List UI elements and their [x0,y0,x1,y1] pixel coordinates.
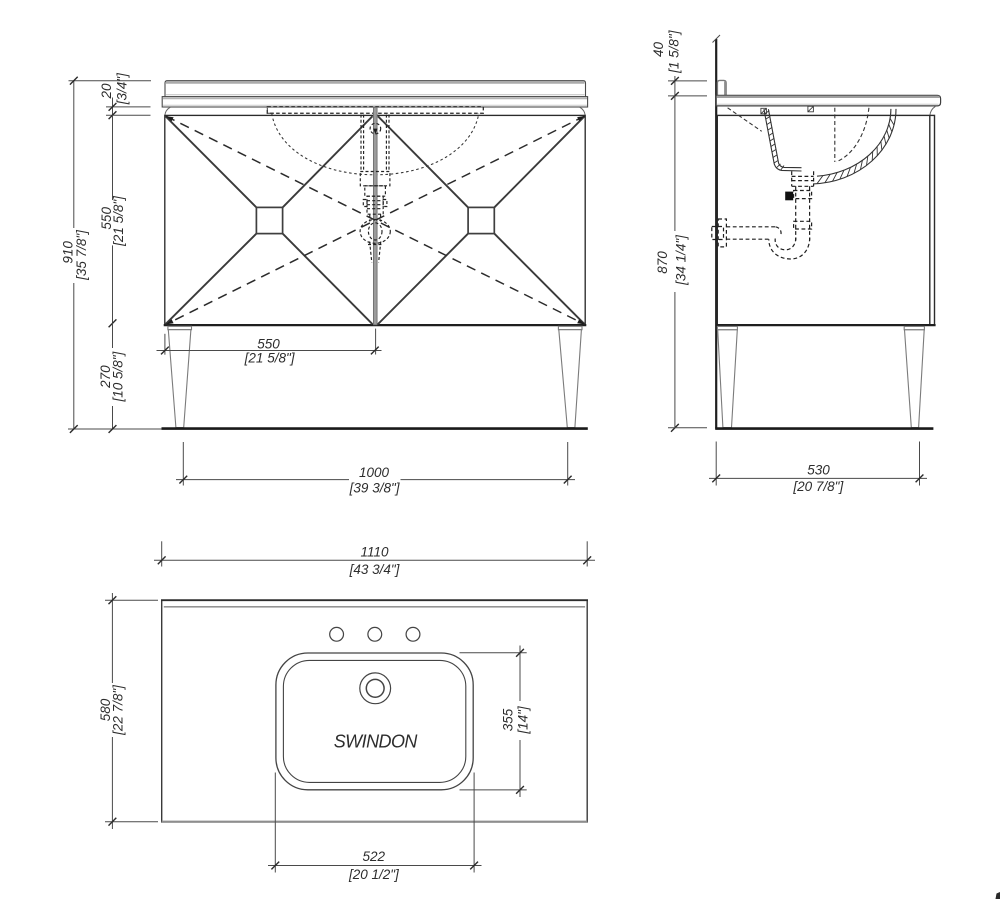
svg-text:[14"]: [14"] [515,705,530,735]
svg-text:[1 5/8"]: [1 5/8"] [666,29,681,74]
svg-text:[21 5/8"]: [21 5/8"] [244,350,296,365]
svg-text:[34 1/4"]: [34 1/4"] [674,234,689,286]
svg-text:550: 550 [257,336,280,351]
svg-text:530: 530 [807,462,830,477]
svg-text:522: 522 [363,849,386,864]
svg-text:[20 1/2"]: [20 1/2"] [348,867,400,882]
svg-text:1000: 1000 [359,465,390,480]
svg-text:[35 7/8"]: [35 7/8"] [74,229,89,281]
svg-text:[21 5/8"]: [21 5/8"] [111,195,126,247]
svg-text:1110: 1110 [360,544,389,559]
svg-text:[20 7/8"]: [20 7/8"] [792,479,844,494]
svg-text:870: 870 [655,251,670,274]
svg-text:SWINDON: SWINDON [334,732,419,752]
svg-text:355: 355 [501,708,516,731]
svg-text:20: 20 [99,83,114,100]
svg-text:[10 5/8"]: [10 5/8"] [110,350,125,402]
svg-text:[22 7/8"]: [22 7/8"] [111,684,126,736]
svg-text:[3/4"]: [3/4"] [115,72,130,105]
svg-text:[43 3/4"]: [43 3/4"] [349,562,401,577]
svg-text:[39 3/8"]: [39 3/8"] [349,480,401,495]
svg-text:40: 40 [651,42,666,58]
